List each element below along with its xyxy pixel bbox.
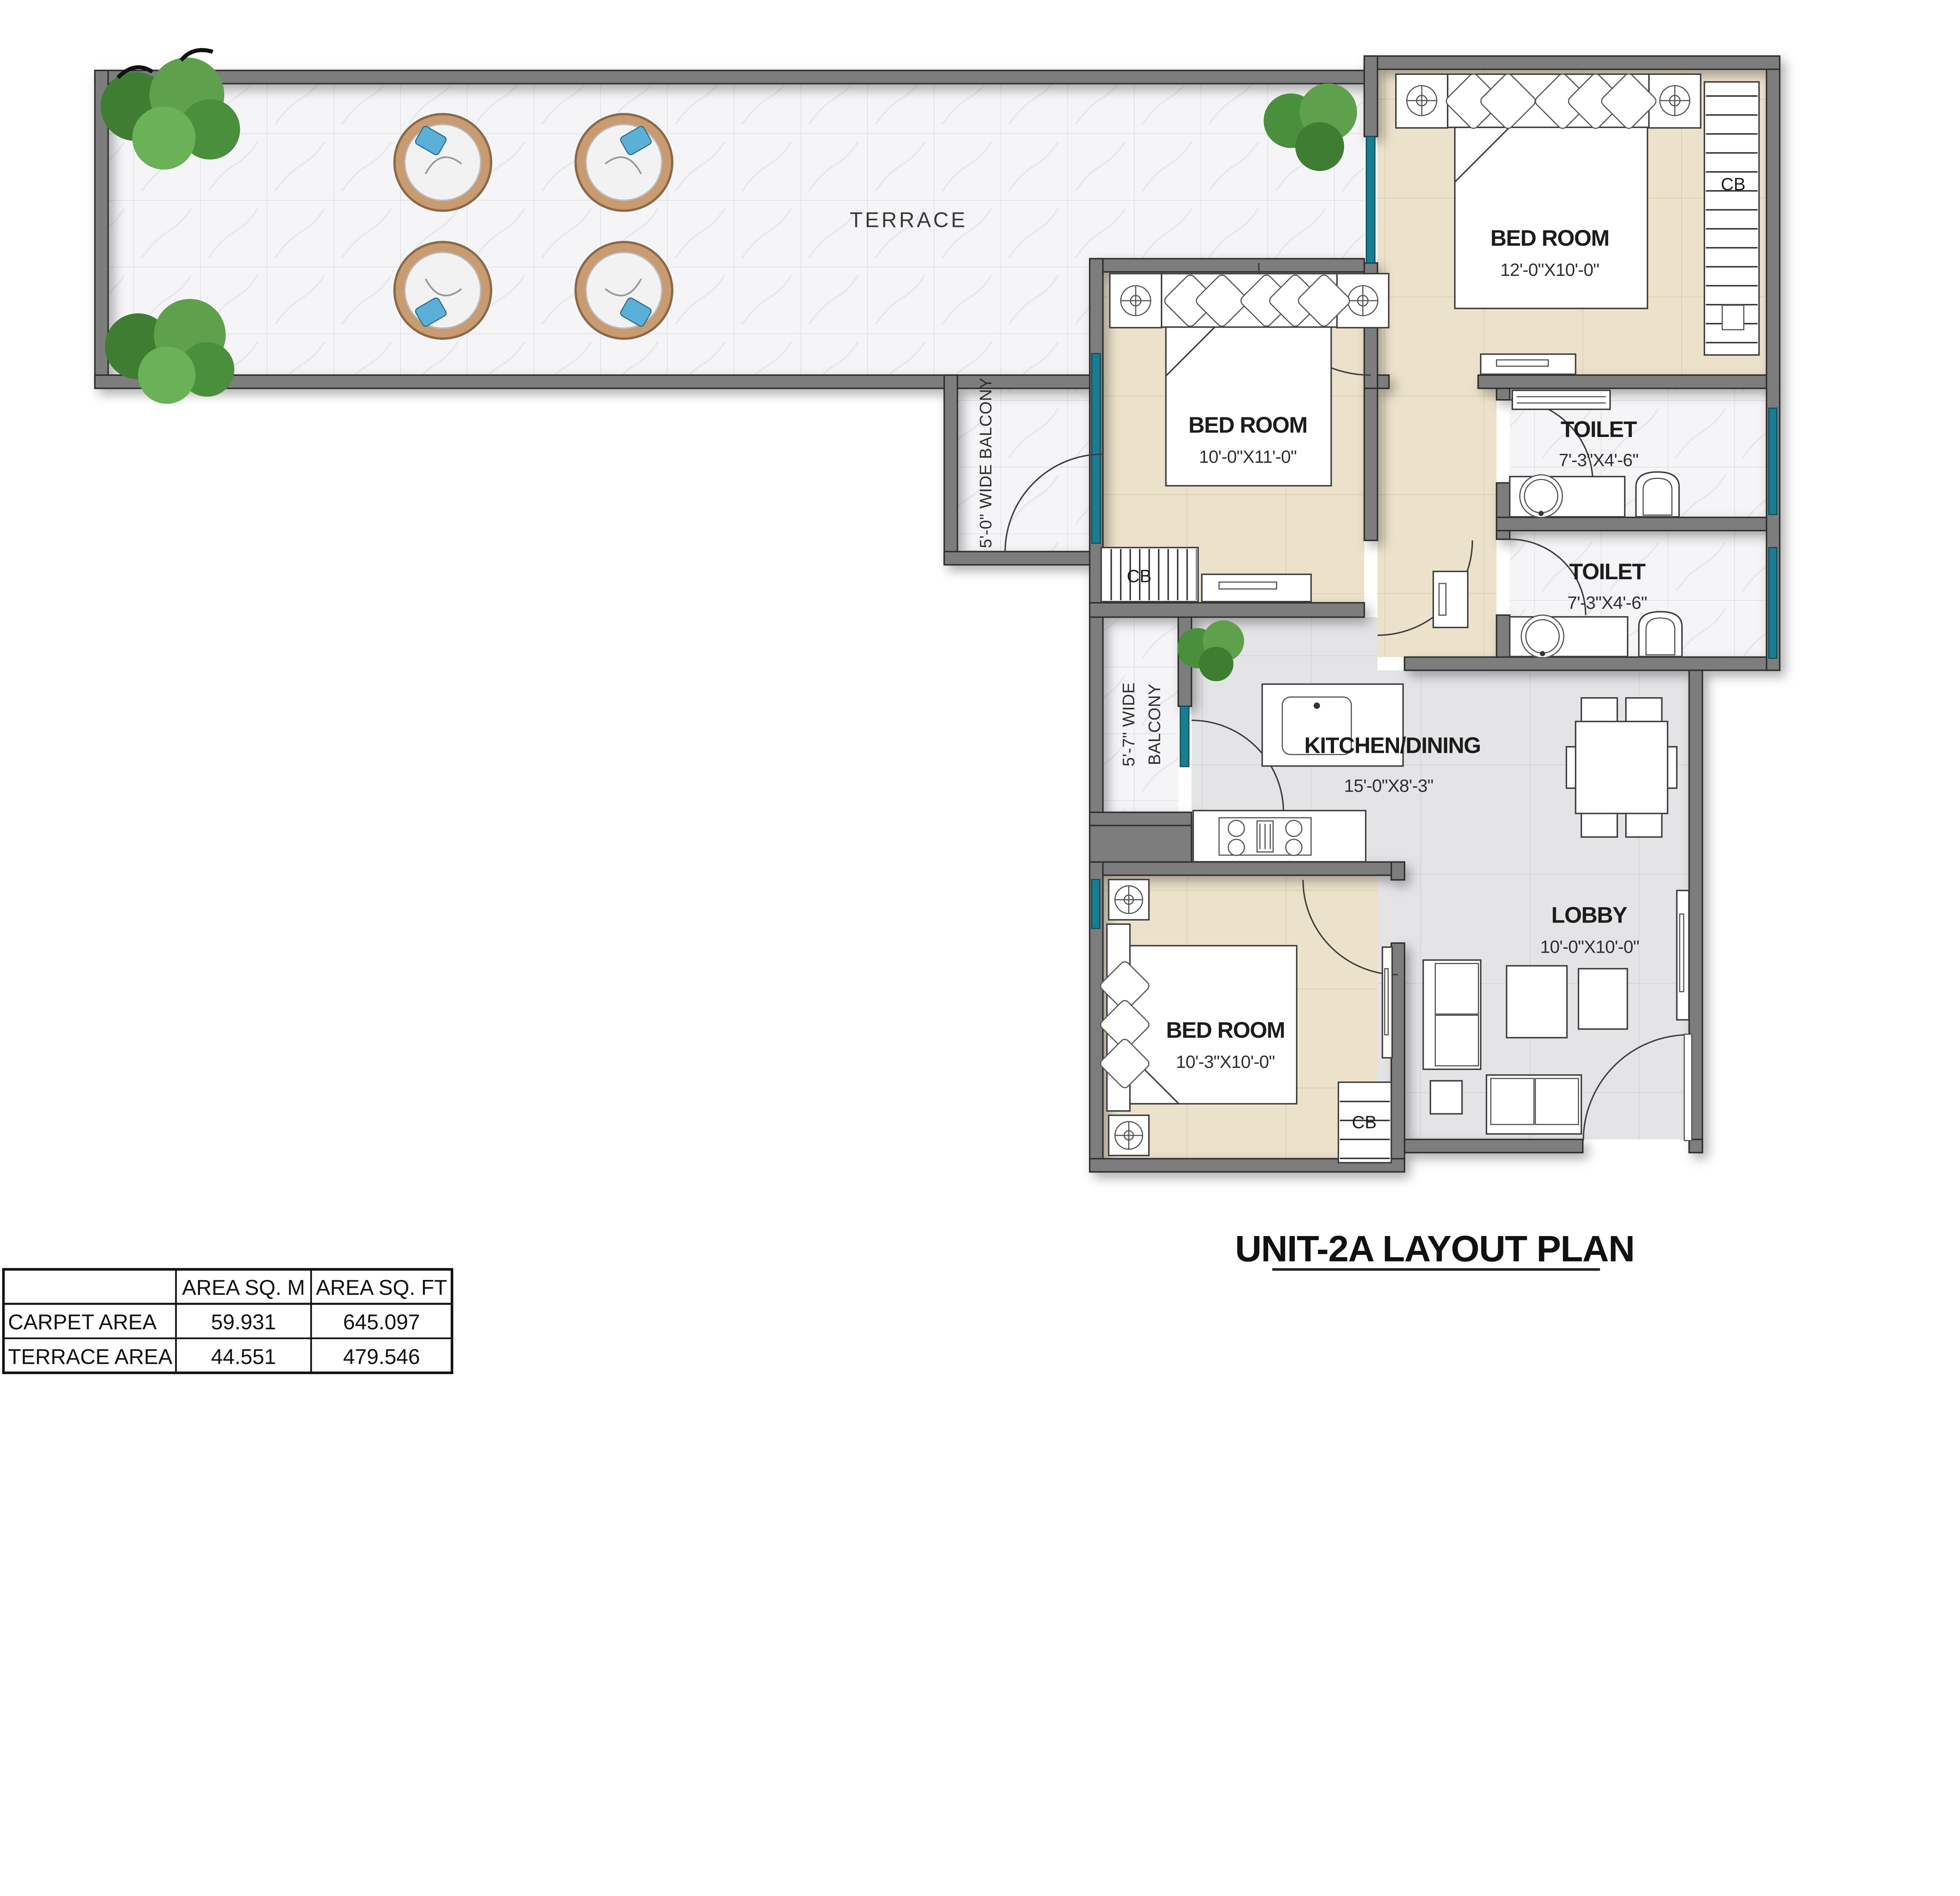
- area-table: AREA SQ. M AREA SQ. FT CARPET AREA 59.93…: [4, 1269, 452, 1373]
- tv-console: [1481, 354, 1575, 374]
- round-lounge-chair: [575, 242, 672, 339]
- lamp: [1121, 286, 1151, 315]
- kitchen-dims: 15'-0"X8'-3": [1344, 776, 1434, 796]
- table-row-carpet-label: CARPET AREA: [8, 1310, 157, 1334]
- faucet: [1314, 703, 1320, 709]
- table-row-terrace-sqm: 44.551: [211, 1345, 276, 1369]
- side-table: [1579, 969, 1628, 1029]
- lamp: [1660, 86, 1690, 116]
- cb2-label: CB: [1127, 566, 1151, 586]
- floor-plan-svg: TERRACE BED ROOM 12'-0"X10'-0" BED ROOM …: [0, 0, 1960, 1390]
- console: [1677, 890, 1689, 1020]
- table-header-sqm: AREA SQ. M: [182, 1276, 305, 1300]
- lobby-dims: 10'-0"X10'-0": [1540, 937, 1639, 957]
- faucet: [1539, 511, 1544, 516]
- round-lounge-chair: [394, 114, 491, 210]
- side-table: [1430, 1081, 1462, 1114]
- dining-chair: [1581, 698, 1617, 723]
- bedroom1-label: BED ROOM: [1490, 226, 1609, 251]
- bedroom3-window: [1092, 879, 1100, 928]
- entrance-door-leaf: [1684, 1034, 1692, 1140]
- lamp: [1407, 86, 1437, 116]
- balcony1-label: 5'-0" WIDE BALCONY: [976, 377, 995, 548]
- side-table: [1722, 305, 1744, 330]
- dresser: [1202, 574, 1311, 602]
- table-row-carpet-sqft: 645.097: [343, 1310, 420, 1334]
- dining-chair: [1566, 747, 1576, 788]
- balcony2-window: [1180, 706, 1189, 767]
- tv-panel: [1382, 947, 1392, 1058]
- cb1-label: CB: [1721, 174, 1746, 194]
- terrace-label: TERRACE: [850, 208, 967, 232]
- bedroom2-dims: 10'-0"X11'-0": [1199, 447, 1297, 467]
- wc: [1636, 472, 1679, 517]
- dining-chair: [1626, 812, 1662, 837]
- round-lounge-chair: [394, 242, 491, 339]
- terrace-door-glass: [1366, 136, 1375, 263]
- plan-title: UNIT-2A LAYOUT PLAN: [1235, 1228, 1635, 1269]
- loveseat: [1486, 1075, 1581, 1134]
- toilet1-window: [1769, 408, 1777, 515]
- toilet2-label: TOILET: [1569, 559, 1646, 584]
- pillows: [1099, 960, 1151, 1089]
- toilet2-fixtures: [1510, 612, 1682, 658]
- balcony2-label-line2: BALCONY: [1145, 683, 1164, 765]
- stove-counter: [1193, 810, 1366, 862]
- lamp: [1115, 886, 1142, 914]
- faucet: [1540, 651, 1545, 656]
- dining-chair: [1581, 812, 1617, 837]
- bedroom3-dims: 10'-3"X10'-0": [1176, 1052, 1275, 1072]
- plan-title-group: UNIT-2A LAYOUT PLAN: [1235, 1228, 1635, 1271]
- armchair: [1506, 966, 1567, 1037]
- dining-chair: [1626, 698, 1662, 723]
- lamp: [1348, 286, 1377, 315]
- sofa: [1423, 960, 1481, 1069]
- bedroom2-label: BED ROOM: [1189, 413, 1307, 438]
- title-underline: [1272, 1268, 1600, 1271]
- lamp: [1115, 1122, 1142, 1149]
- wc: [1639, 612, 1682, 656]
- toilet2-window: [1769, 547, 1777, 658]
- bedroom3-label: BED ROOM: [1166, 1018, 1285, 1043]
- table-row-terrace-label: TERRACE AREA: [8, 1345, 173, 1369]
- bedroom1-dims: 12'-0"X10'-0": [1500, 260, 1599, 280]
- balcony2-floor: [1103, 617, 1178, 812]
- dresser: [1433, 571, 1468, 627]
- toilet1-label: TOILET: [1561, 417, 1637, 442]
- cb3-label: CB: [1352, 1112, 1377, 1132]
- dining-chair: [1667, 747, 1677, 788]
- dining-table: [1575, 721, 1668, 814]
- table-header-sqft: AREA SQ. FT: [316, 1276, 447, 1300]
- balcony1-window: [1092, 353, 1100, 543]
- toilet2-dims: 7'-3"X4'-6": [1567, 593, 1647, 613]
- table-row-carpet-sqm: 59.931: [211, 1310, 276, 1334]
- lobby-label: LOBBY: [1551, 903, 1627, 928]
- table-row-terrace-sqft: 479.546: [343, 1345, 420, 1369]
- round-lounge-chair: [575, 114, 672, 210]
- kitchen-label: KITCHEN/DINING: [1304, 733, 1481, 758]
- toilet1-dims: 7'-3"X4'-6": [1559, 450, 1638, 470]
- balcony2-label-line1: 5'-7" WIDE: [1120, 682, 1138, 767]
- shelf: [1512, 390, 1610, 409]
